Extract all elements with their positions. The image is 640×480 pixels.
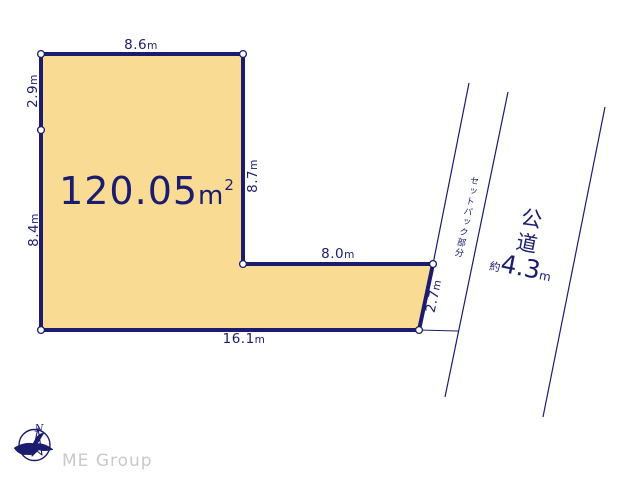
dimension-unit: m xyxy=(255,334,266,346)
vertex-dot xyxy=(38,327,45,334)
company-watermark: ME Group xyxy=(62,451,153,471)
dimension-bottom: 16.1m xyxy=(223,331,266,347)
dimension-top: 8.6m xyxy=(124,37,158,53)
dimension-value: 8.0 xyxy=(321,246,344,262)
vertex-dot xyxy=(38,51,45,58)
dimension-unit: m xyxy=(28,74,40,85)
land-plot-diagram: 8.6m 2.9m 8.4m 8.7m 8.0m 2.7m 16.1m 120.… xyxy=(0,0,640,480)
dimension-unit: m xyxy=(147,40,158,52)
area-exponent: 2 xyxy=(224,176,235,194)
dimension-left-upper: 2.9m xyxy=(25,74,41,108)
corner-connector-line xyxy=(419,330,458,331)
vertex-dot xyxy=(240,51,247,58)
dimension-unit: m xyxy=(430,278,444,291)
dimension-value: 8.6 xyxy=(124,37,147,53)
dimension-inner-vertical: 8.7m xyxy=(245,159,261,193)
vertex-dot xyxy=(430,261,437,268)
parcel-area-label: 120.05m2 xyxy=(59,169,235,213)
area-unit: m xyxy=(198,181,224,211)
dimension-unit: m xyxy=(344,249,355,261)
dimension-value: 8.7 xyxy=(245,170,261,193)
dimension-inner-horizontal: 8.0m xyxy=(321,246,355,262)
vertex-dot xyxy=(38,127,45,134)
dimension-value: 8.4 xyxy=(26,224,42,247)
vertex-dot xyxy=(240,261,247,268)
area-value: 120.05 xyxy=(59,169,198,213)
north-indicator: N xyxy=(35,424,44,435)
dimension-left-lower: 8.4m xyxy=(26,213,42,247)
dimension-value: 2.9 xyxy=(25,85,41,108)
dimension-value: 16.1 xyxy=(223,331,255,347)
dimension-unit: m xyxy=(29,213,41,224)
plot-drawing xyxy=(0,0,640,480)
vertex-dot xyxy=(416,327,423,334)
dimension-unit: m xyxy=(248,159,260,170)
